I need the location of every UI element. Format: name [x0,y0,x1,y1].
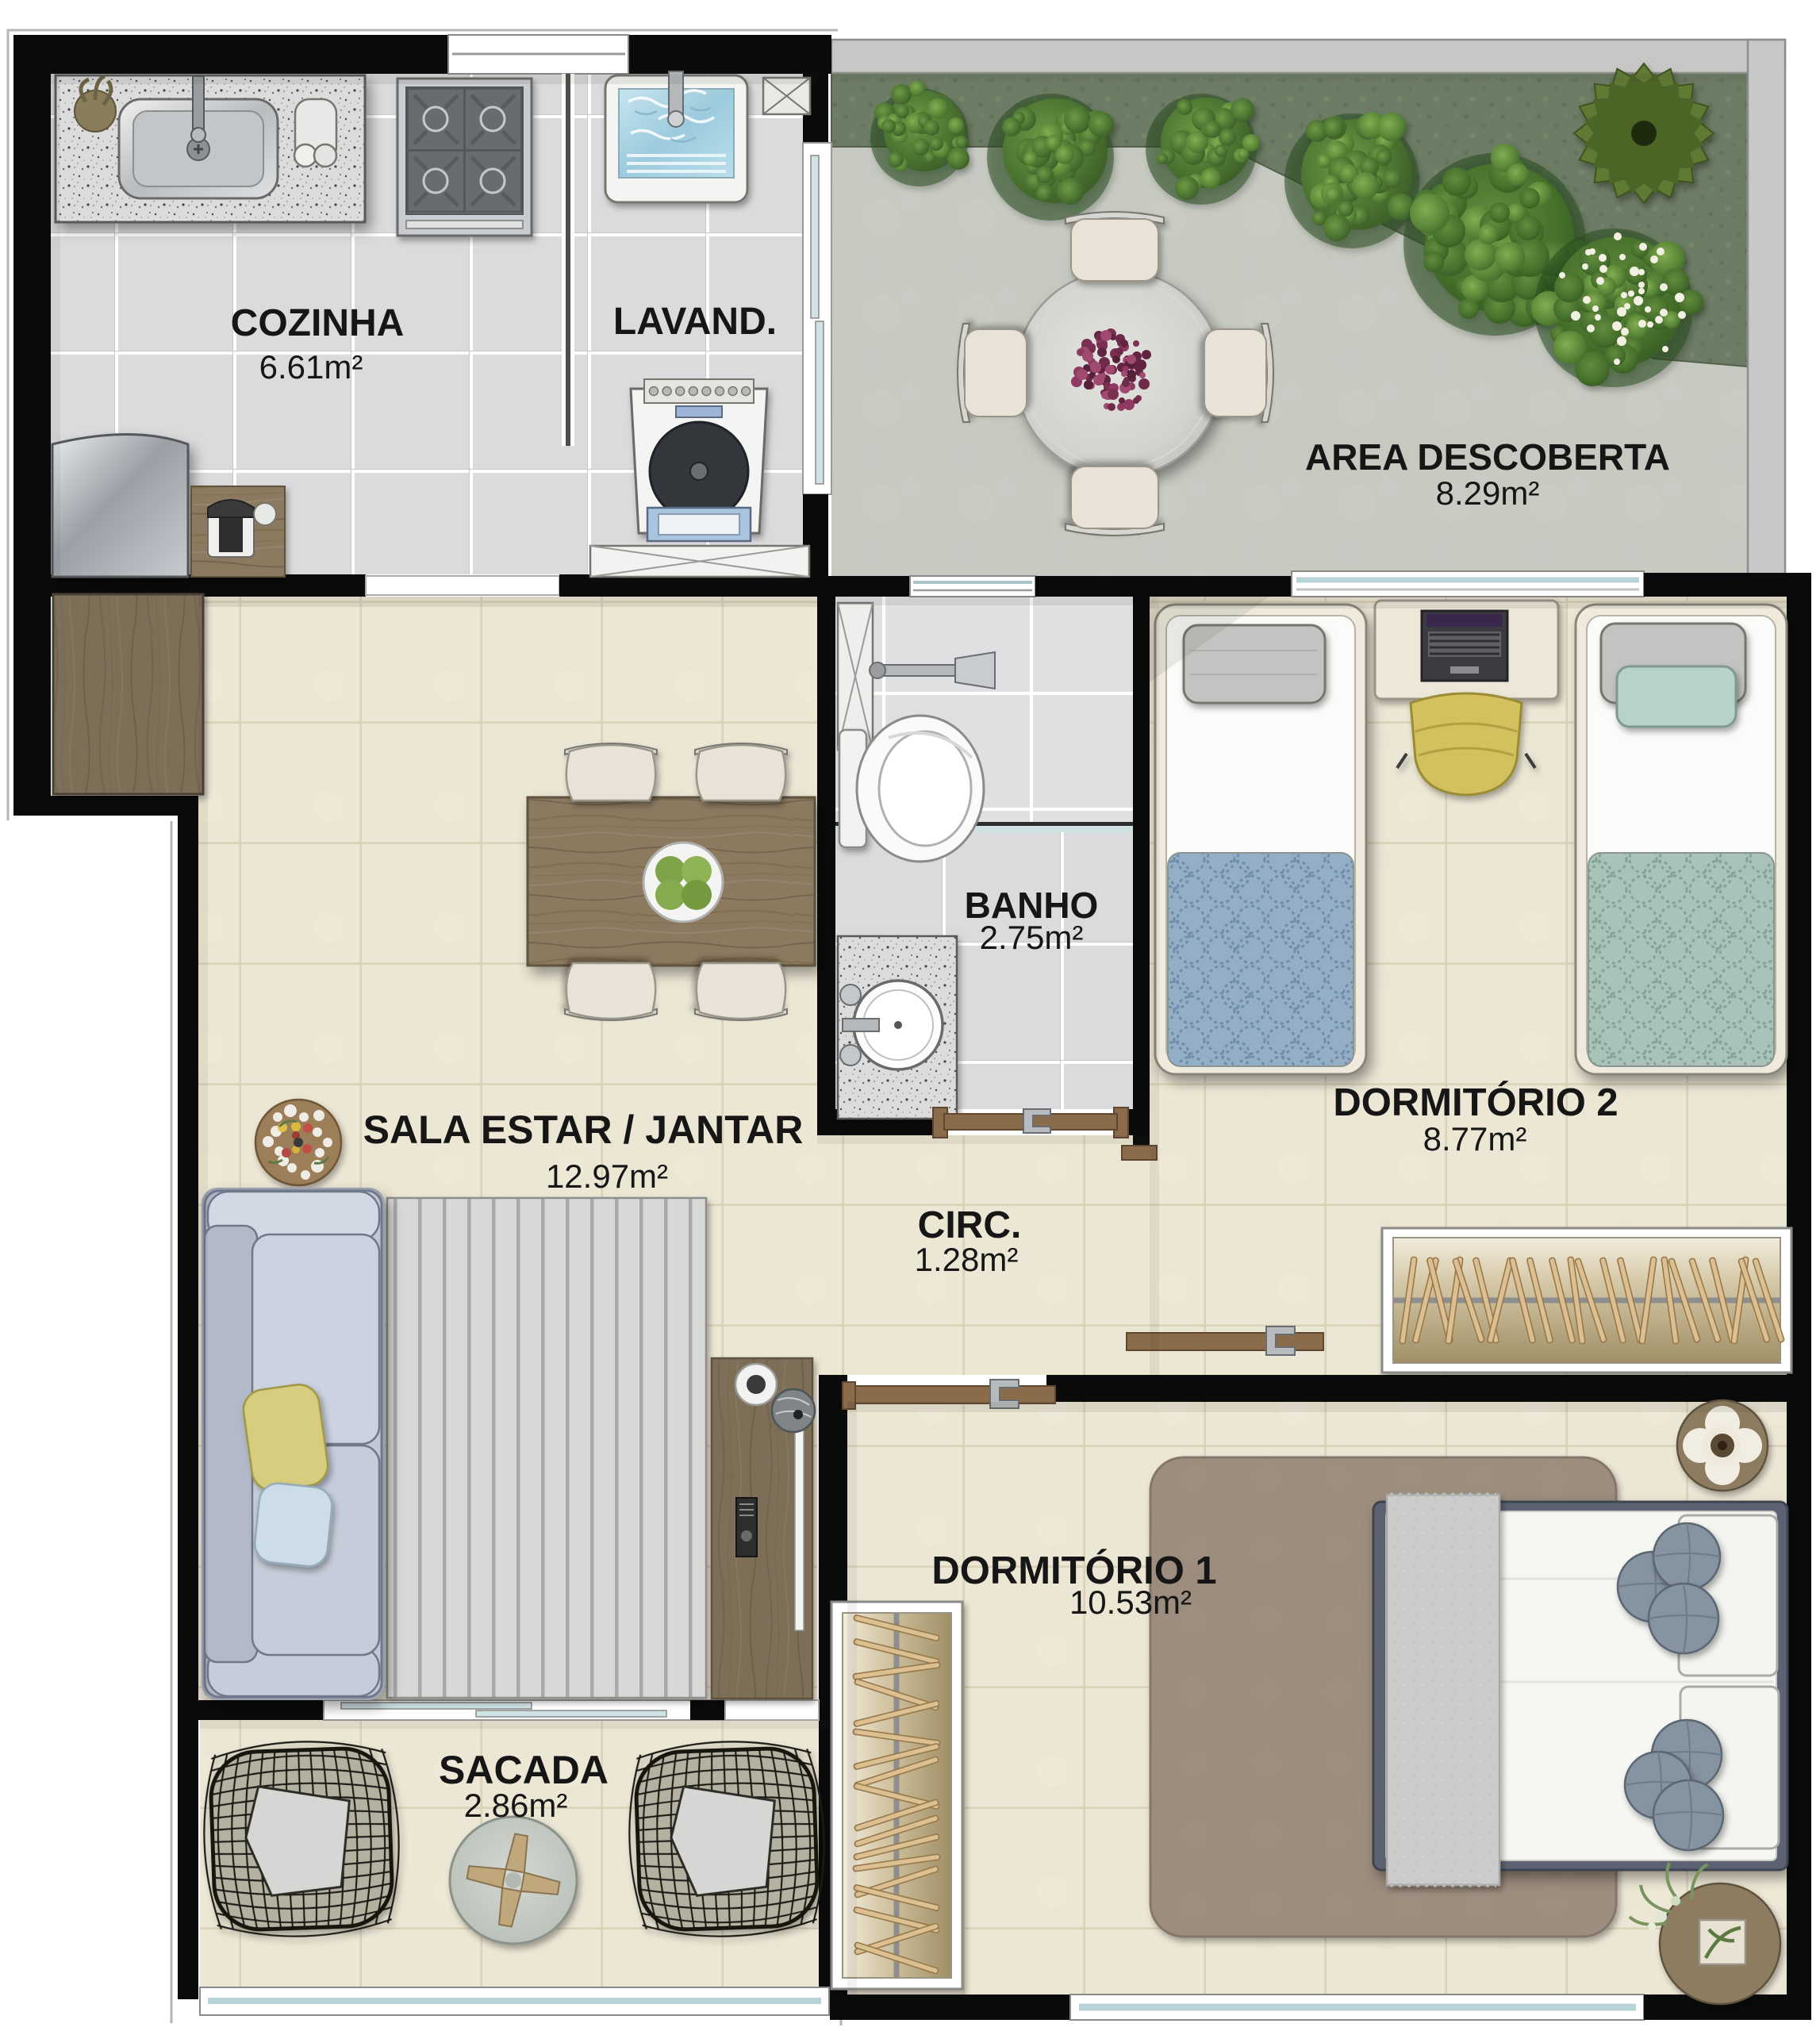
svg-text:1.28m²: 1.28m² [915,1241,1019,1278]
svg-text:12.97m²: 12.97m² [546,1158,668,1195]
svg-text:COZINHA: COZINHA [231,302,405,344]
svg-text:SALA ESTAR / JANTAR: SALA ESTAR / JANTAR [363,1108,804,1152]
svg-text:2.86m²: 2.86m² [464,1787,568,1824]
svg-text:SACADA: SACADA [439,1748,609,1792]
svg-text:2.75m²: 2.75m² [980,919,1084,956]
svg-text:8.29m²: 8.29m² [1436,474,1540,512]
svg-text:6.61m²: 6.61m² [259,348,363,386]
svg-text:AREA DESCOBERTA: AREA DESCOBERTA [1305,436,1670,478]
svg-text:10.53m²: 10.53m² [1069,1584,1192,1621]
svg-text:LAVAND.: LAVAND. [613,301,777,343]
svg-text:8.77m²: 8.77m² [1423,1120,1527,1158]
svg-text:DORMITÓRIO 2: DORMITÓRIO 2 [1333,1081,1618,1124]
